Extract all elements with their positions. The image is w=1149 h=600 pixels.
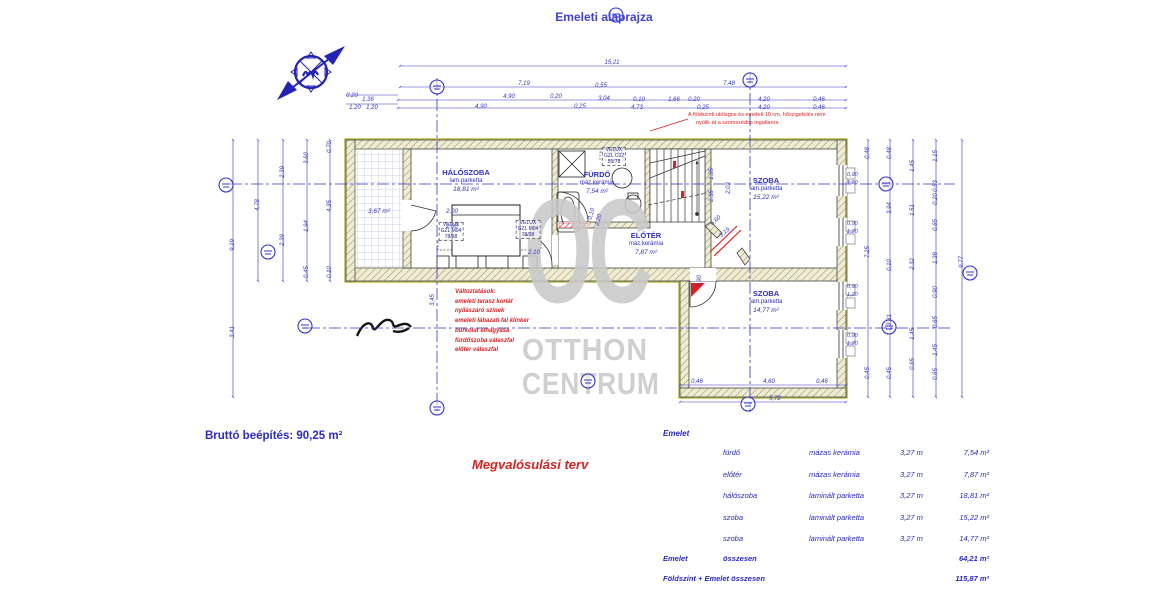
changes-note: Változtatások:emeleti terasz korlátnyílá…	[455, 288, 529, 356]
dimension-label: 7,48	[723, 81, 735, 87]
dimension-label: 3,45	[430, 294, 436, 306]
table-total-value: 115,87 m²	[893, 574, 989, 583]
room-area: 7,87 m²	[629, 249, 663, 257]
table-cell-room: szoba	[723, 513, 743, 522]
area-table: Emelet fürdőmázas kerámia3,27 m7,54 m²el…	[663, 426, 989, 596]
dimension-label: 6,60	[710, 215, 723, 227]
insulation-note-line: A földszinti utólagos és emeleti 10 cm. …	[688, 112, 826, 120]
dimension-label: 7,19	[518, 81, 530, 87]
dimension-label: 0,20	[550, 94, 562, 100]
room-floor-finish: lam.parketta	[749, 299, 782, 307]
insulation-note-line: nyúlik át a szomszédos ingatlanra	[688, 120, 826, 128]
dimension-label: 0,46	[813, 97, 825, 103]
dimension-label: 1,36	[362, 97, 374, 103]
room-label: HÁLÓSZOBAlam.parketta18,81 m²	[442, 168, 490, 194]
dimension-label: 1,94	[304, 220, 310, 232]
table-total-label2: összesen	[723, 554, 757, 563]
changes-note-line: emeleti lábazati fal klinker	[455, 317, 529, 327]
room-floor-finish: lam.parketta	[749, 186, 782, 194]
table-cell-material: laminált parketta	[809, 491, 864, 500]
room-area: 18,81 m²	[442, 186, 490, 194]
dimension-label: 1,45	[933, 344, 939, 356]
dimension-label: 0,46	[813, 105, 825, 111]
table-cell-room: előtér	[723, 470, 742, 479]
drawing-title: Emeleti alaprajza	[555, 10, 652, 24]
window-dimension-label: 0,901,20	[847, 333, 858, 349]
dimension-label: 2,32	[910, 258, 916, 270]
dimension-label: 1,51	[910, 204, 916, 216]
table-total-label: Földszint + Emelet összesen	[663, 574, 765, 583]
window-width: 0,90	[847, 172, 858, 180]
dimension-label: 4,60	[763, 379, 775, 385]
room-name: SZOBA	[749, 289, 782, 299]
table-cell-room: szoba	[723, 534, 743, 543]
dimension-label: 4,73	[631, 105, 643, 111]
dimension-label: 7,25	[865, 246, 871, 258]
table-cell-material: laminált parketta	[809, 513, 864, 522]
window-sill-height: 1,20	[847, 180, 858, 188]
dimension-label: 2,00	[446, 209, 458, 215]
dimension-label: 5,72	[769, 396, 781, 402]
dimension-label: 2,00	[446, 224, 458, 230]
table-cell-area: 14,77 m²	[893, 534, 989, 543]
changes-note-line: emeleti terasz korlát	[455, 298, 529, 308]
changes-note-line: előtér válaszfal	[455, 346, 529, 356]
dimension-label: 0,70	[327, 141, 333, 153]
room-label: 3,67 m²	[368, 208, 390, 216]
table-cell-room: fürdő	[723, 448, 740, 457]
changes-note-line: Változtatások:	[455, 288, 529, 298]
dimension-label: 2,10	[528, 250, 540, 256]
dimension-label: 4,35	[327, 200, 333, 212]
table-cell-area: 7,87 m²	[893, 470, 989, 479]
room-name: ELŐTÉR	[629, 231, 663, 241]
table-cell-material: mázas kerámia	[809, 470, 860, 479]
table-total-label: Emelet	[663, 554, 688, 563]
dimension-label: 1,20	[349, 105, 361, 111]
dimension-label: 0,48	[865, 147, 871, 159]
dimension-label: 0,20	[933, 193, 939, 205]
dimension-label: 3,04	[598, 96, 610, 102]
dimension-label: 0,25	[697, 105, 709, 111]
dimension-label: 0,65	[933, 219, 939, 231]
dimension-label: 0,46	[691, 379, 703, 385]
dimension-label: 9,77	[959, 256, 965, 268]
table-header: Emelet	[663, 429, 689, 438]
table-total-value: 64,21 m²	[893, 554, 989, 563]
roof-window-label: VELUXGZL C0255/78	[602, 147, 626, 166]
dimension-label: 3,60	[304, 152, 310, 164]
dimension-label: 1,38	[933, 252, 939, 264]
room-floor-finish: máz.kerámia	[580, 180, 614, 188]
plan-type-label: Megvalósulási terv	[472, 457, 588, 472]
window-width: 0,90	[847, 284, 858, 292]
dimension-label: 3,31	[887, 314, 893, 326]
dimension-label: 0,55	[595, 83, 607, 89]
table-cell-area: 18,81 m²	[893, 491, 989, 500]
dimension-label: 0,90	[933, 286, 939, 298]
dimension-label: 9,19	[230, 239, 236, 251]
room-label: FÜRDŐmáz.kerámia7,54 m²	[580, 170, 614, 196]
dimension-label: 4,20	[758, 97, 770, 103]
dimension-label: 0,46	[816, 379, 828, 385]
room-name: HÁLÓSZOBA	[442, 168, 490, 178]
roof-window-label-line: 55/78	[604, 160, 624, 166]
window-sill-height: 1,20	[847, 229, 858, 237]
dimension-label: 0,65	[910, 358, 916, 370]
table-cell-area: 7,54 m²	[893, 448, 989, 457]
dimension-label: 0,20	[346, 93, 358, 99]
dimension-label: 3,41	[230, 326, 236, 338]
dimension-label: 4,90	[503, 94, 515, 100]
dimension-label: 0,90	[697, 275, 703, 287]
dimension-label: 0,10	[327, 266, 333, 278]
changes-note-line: fürdőszoba válaszfal	[455, 337, 529, 347]
dimension-label: 3,19	[719, 227, 732, 239]
dimension-label: 0,10	[633, 97, 645, 103]
room-label: SZOBAlam.parketta14,77 m²	[749, 289, 782, 315]
room-floor-finish: máz.kerámia	[629, 241, 663, 249]
room-label: ELŐTÉRmáz.kerámia7,87 m²	[629, 231, 663, 257]
dimension-label: 2,39	[280, 166, 286, 178]
dimension-label: 2,20	[595, 214, 604, 227]
insulation-note: A földszinti utólagos és emeleti 10 cm. …	[688, 112, 826, 127]
blueprint-canvas: OC OTTHON CENTRUM Emeleti alaprajza Brut…	[0, 0, 1149, 600]
table-cell-material: mázas kerámia	[809, 448, 860, 457]
dimension-label: 1,45	[910, 160, 916, 172]
table-cell-material: laminált parketta	[809, 534, 864, 543]
room-label: SZOBAlam.parketta15,22 m²	[749, 176, 782, 202]
dimension-label: 15,21	[604, 60, 619, 66]
dimension-label: 0,65	[933, 368, 939, 380]
window-width: 0,90	[847, 221, 858, 229]
dimension-label: 0,53	[933, 180, 939, 192]
table-cell-room: hálószoba	[723, 491, 757, 500]
dimension-label: 3,94	[887, 202, 893, 214]
dimension-label: 0,48	[887, 147, 893, 159]
window-dimension-label: 0,901,20	[847, 172, 858, 188]
dimension-label: 0,10	[887, 259, 893, 271]
changes-note-line: burkolat elhagyása	[455, 327, 529, 337]
dimension-label: 1,45	[910, 328, 916, 340]
dimension-label: 2,35	[709, 190, 715, 202]
dimension-label: 0,25	[574, 104, 586, 110]
dimension-label: 0,45	[887, 367, 893, 379]
room-area: 3,67 m²	[368, 208, 390, 216]
dimension-label: 1,15	[933, 150, 939, 162]
dimension-label: 4,78	[255, 199, 261, 211]
dimension-label: 0,45	[865, 367, 871, 379]
table-cell-area: 15,22 m²	[893, 513, 989, 522]
dimension-label: 1,35	[709, 168, 715, 180]
dimension-label: 0,65	[933, 316, 939, 328]
dimension-label: 4,90	[475, 104, 487, 110]
window-dimension-label: 0,901,20	[847, 284, 858, 300]
dimension-label: 2,39	[280, 234, 286, 246]
room-name: FÜRDŐ	[580, 170, 614, 180]
dimension-label: 1,20	[366, 105, 378, 111]
dimension-label: 0,45	[304, 266, 310, 278]
gross-area-label: Bruttó beépítés: 90,25 m²	[205, 430, 342, 442]
dimension-label: 0,20	[688, 97, 700, 103]
room-name: SZOBA	[749, 176, 782, 186]
room-area: 14,77 m²	[749, 307, 782, 315]
room-floor-finish: lam.parketta	[442, 178, 490, 186]
room-area: 15,22 m²	[749, 194, 782, 202]
dimension-label: 4,20	[758, 105, 770, 111]
dimension-label: 2,03	[726, 182, 732, 194]
roof-window-label-line: 78/98	[518, 233, 539, 239]
dimension-label: 1,66	[668, 97, 680, 103]
window-sill-height: 1,20	[847, 341, 858, 349]
annotation-layer: Emeleti alaprajza Bruttó beépítés: 90,25…	[0, 0, 1149, 600]
window-sill-height: 1,20	[847, 292, 858, 300]
changes-note-line: nyílászáró színek	[455, 307, 529, 317]
room-area: 7,54 m²	[580, 188, 614, 196]
window-dimension-label: 0,901,20	[847, 221, 858, 237]
roof-window-label-line: 78/98	[441, 235, 462, 241]
roof-window-label: VELUXGZL M0478/98	[516, 220, 541, 239]
window-width: 0,90	[847, 333, 858, 341]
